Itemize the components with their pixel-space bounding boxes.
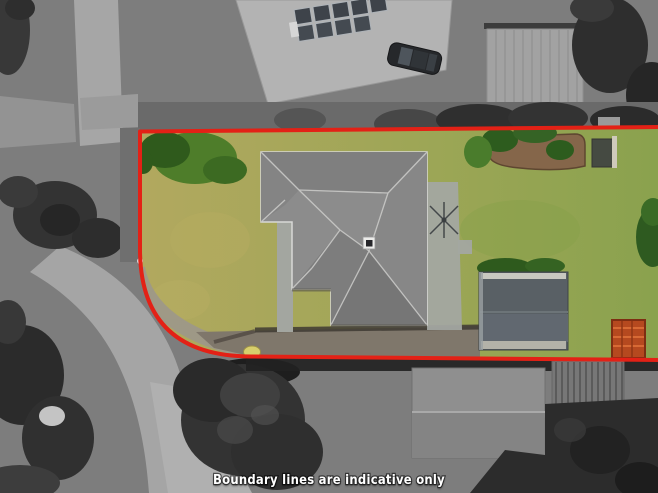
water-tank [592, 139, 614, 167]
trampoline [612, 320, 645, 358]
property-parcel [133, 123, 658, 363]
road-corner [0, 96, 76, 148]
shed-top-edge [481, 273, 566, 279]
caption-label: Boundary lines are indicative only [213, 471, 445, 487]
shed-bottom-edge [481, 341, 566, 349]
driveway-crossing [80, 94, 138, 130]
path-left-of-house [277, 222, 293, 332]
chimney-flue [366, 240, 373, 247]
green-grass-patch [460, 200, 580, 260]
garden-shed [477, 258, 568, 350]
fence-line [484, 23, 586, 29]
tank-edge [612, 136, 617, 168]
dry-grass-patch [170, 212, 250, 268]
neighbour-roof-facet [412, 413, 545, 458]
caption: Boundary lines are indicative only [213, 471, 445, 487]
aerial-photo-canvas: Boundary lines are indicative only Bound… [0, 0, 658, 493]
aerial-photo: Boundary lines are indicative only Bound… [0, 0, 658, 493]
